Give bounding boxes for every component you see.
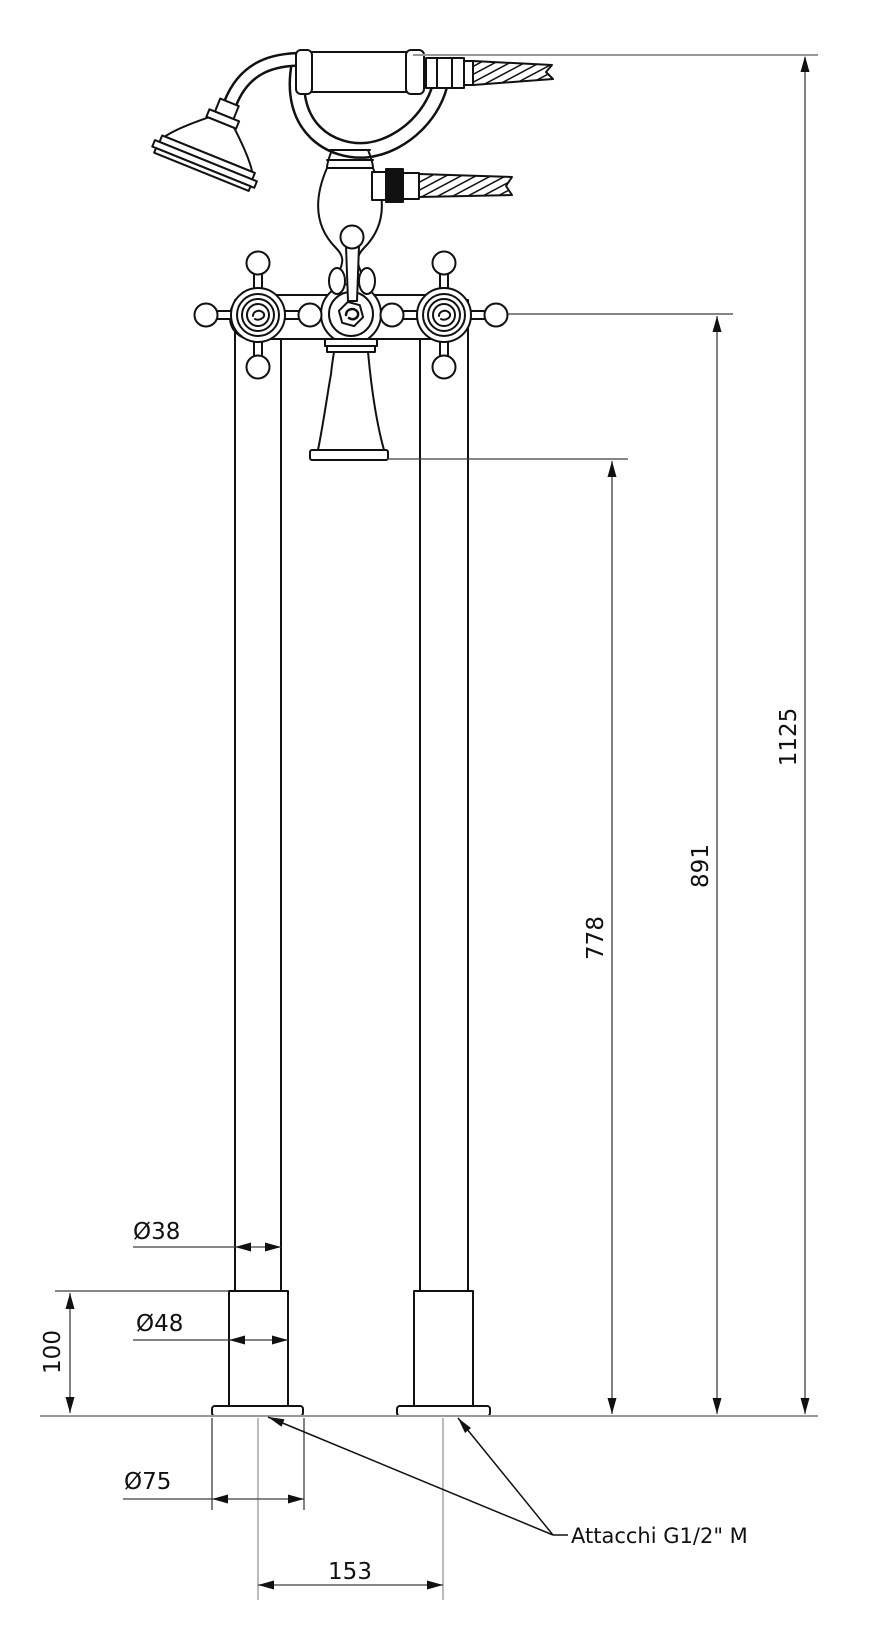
right-cross-handle [381,252,508,379]
right-floor-flange [397,1406,490,1416]
dim-pipe-diameter-label: Ø38 [133,1219,180,1245]
dim-overall-height-label: 1125 [776,708,802,767]
drawing-canvas: 1125 891 778 100 Ø38 Ø48 Ø75 153 Attacch… [0,0,877,1650]
left-base-cylinder [229,1291,288,1406]
dim-center-distance-label: 153 [328,1559,372,1585]
shower-hose [473,61,553,85]
faucet-drawing [150,50,553,1416]
diverter-lever [329,226,375,302]
spout [310,339,388,460]
dim-handle-height-label: 891 [688,844,714,888]
left-floor-flange [212,1406,303,1416]
connections-note-label: Attacchi G1/2" M [571,1524,748,1548]
dim-flange-diameter-label: Ø75 [124,1469,171,1495]
secondary-hose [419,174,512,197]
left-cross-handle [195,252,322,379]
outlet-connector [372,169,419,202]
hose-nut [426,58,473,88]
right-base-cylinder [414,1291,473,1406]
dim-spout-height-label: 778 [583,916,609,960]
shower-head [150,82,280,193]
dim-base-diameter-label: Ø48 [136,1311,183,1337]
leader-lines [268,1417,568,1535]
drawing-page: 1125 891 778 100 Ø38 Ø48 Ø75 153 Attacch… [0,0,877,1650]
right-riser-pipe [420,300,468,1291]
left-riser-pipe [235,300,281,1291]
handset-grip [296,50,424,94]
dim-base-height-label: 100 [40,1330,66,1374]
